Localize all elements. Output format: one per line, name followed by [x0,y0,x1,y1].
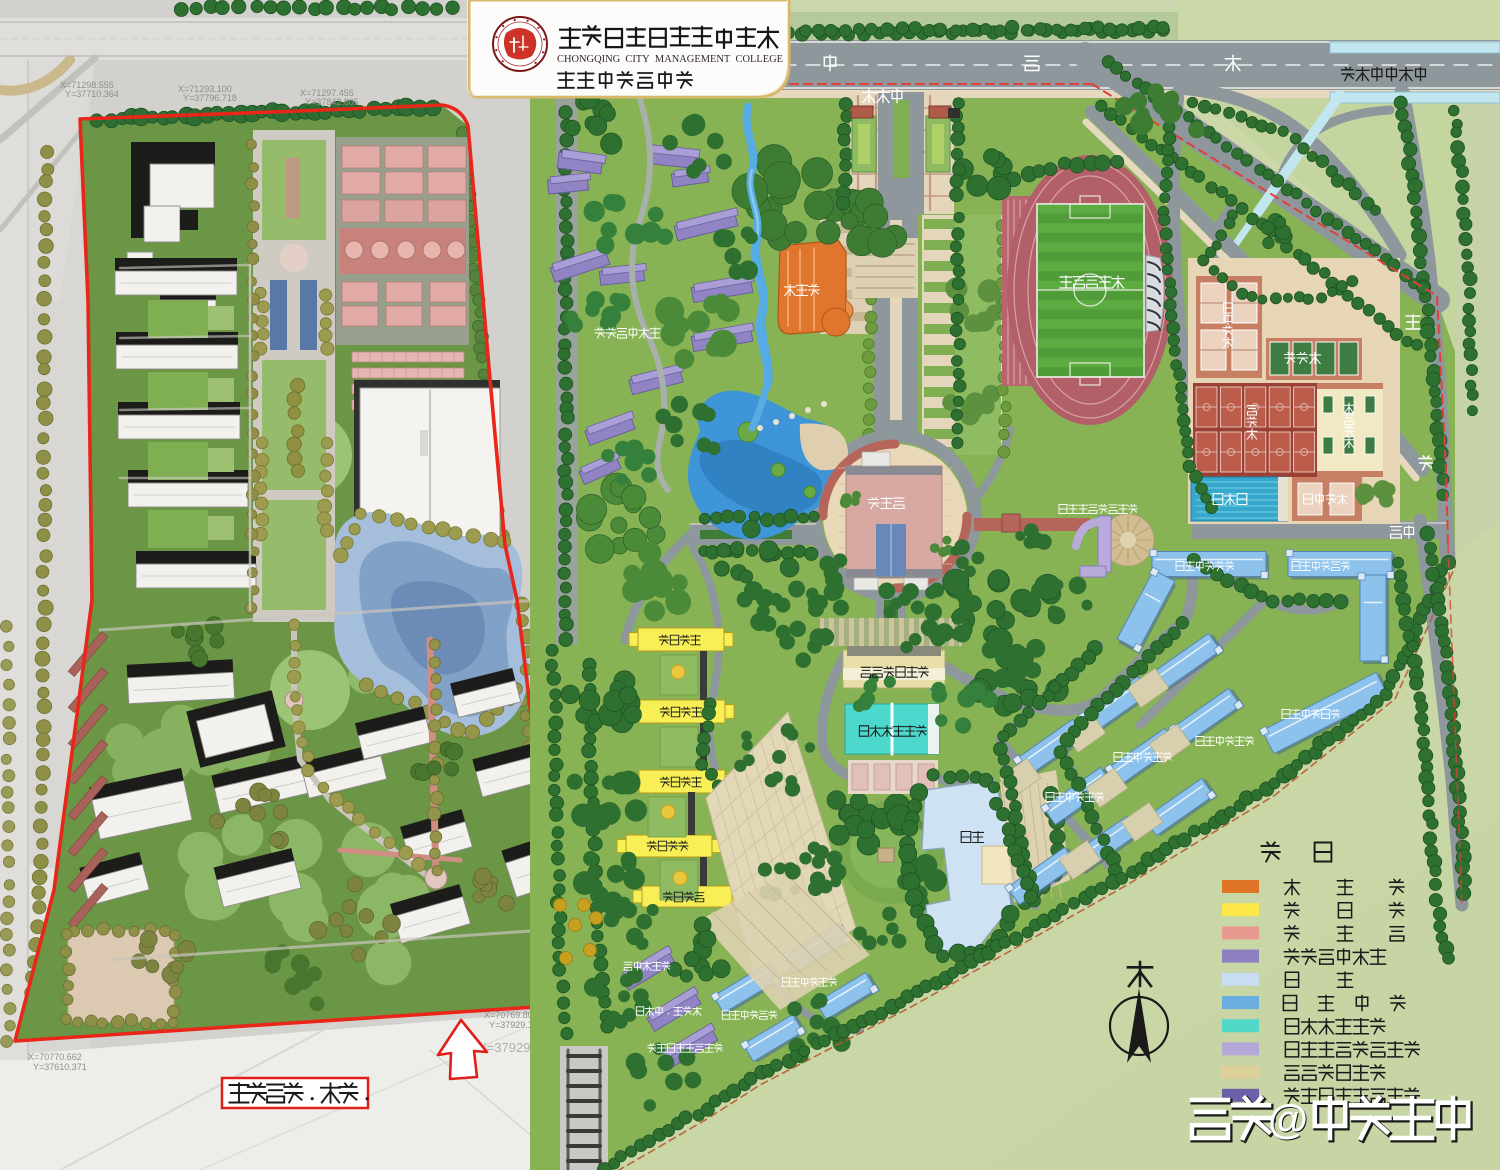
svg-text:Y=37842.805: Y=37842.805 [305,97,359,107]
svg-text:X=70770.662: X=70770.662 [28,1052,82,1062]
svg-text:Y=37710.364: Y=37710.364 [65,89,119,99]
svg-text:@: @ [1268,1096,1308,1142]
svg-text:CHONGQING CITY MANAGEMENT C: CHONGQING CITY MANAGEMENT COLLEGE [557,54,783,65]
svg-text:Y=37610.371: Y=37610.371 [33,1062,87,1072]
svg-text:Y=37796.718: Y=37796.718 [183,93,237,103]
svg-text:X=70769.809: X=70769.809 [484,1010,538,1020]
